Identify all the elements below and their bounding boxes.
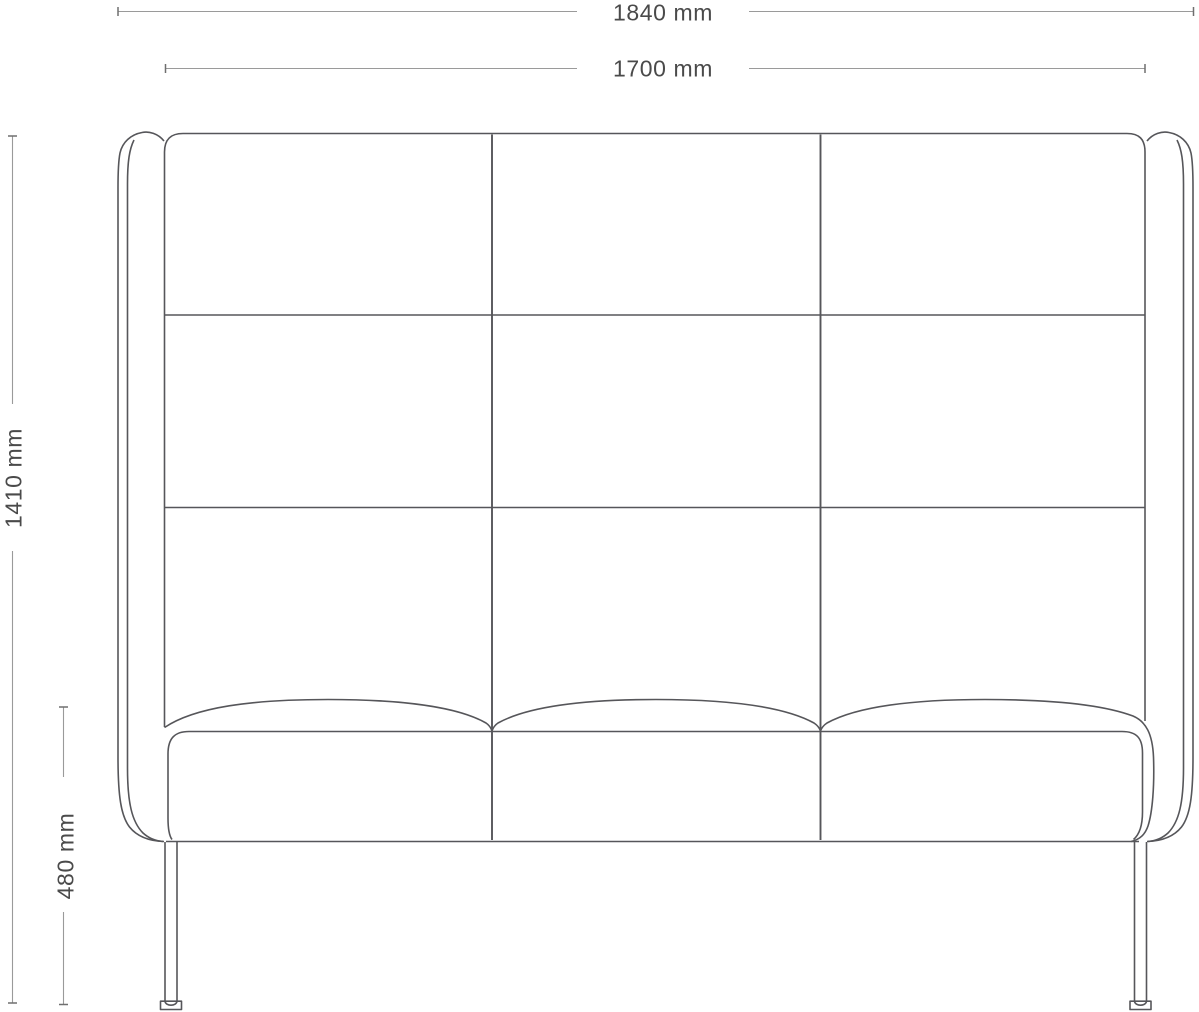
left-wing-outline bbox=[118, 132, 164, 841]
right-foot bbox=[1130, 1001, 1151, 1009]
left-leg bbox=[165, 842, 177, 1001]
sofa-drawing bbox=[118, 132, 1193, 1009]
overall-width-label: 1840 mm bbox=[613, 0, 713, 26]
seat-height-label: 480 mm bbox=[53, 813, 79, 900]
left-wing-crease bbox=[128, 140, 164, 842]
dimension-seat-width: 1700 mm bbox=[166, 56, 1146, 82]
dimension-overall-height: 1410 mm bbox=[1, 136, 27, 1003]
seat-cushion-right bbox=[821, 700, 1154, 842]
seat-width-label: 1700 mm bbox=[613, 56, 713, 82]
dimension-overall-width: 1840 mm bbox=[118, 0, 1194, 26]
right-wing-crease bbox=[1148, 140, 1184, 842]
seat-frame-outline bbox=[168, 732, 1143, 840]
right-leg bbox=[1135, 842, 1147, 1001]
overall-height-label: 1410 mm bbox=[1, 428, 27, 528]
seat-cushion-middle bbox=[492, 700, 821, 732]
backrest-outline bbox=[165, 134, 1146, 728]
seat-cushion-left bbox=[165, 700, 493, 732]
left-foot bbox=[161, 1001, 182, 1009]
right-wing-outline bbox=[1147, 132, 1193, 841]
sofa-front-elevation-diagram: 1840 mm 1700 mm 1410 mm 480 mm bbox=[0, 0, 1199, 1012]
dimension-seat-height: 480 mm bbox=[53, 707, 79, 1005]
sofa-dimension-drawing: 1840 mm 1700 mm 1410 mm 480 mm bbox=[0, 0, 1199, 1012]
